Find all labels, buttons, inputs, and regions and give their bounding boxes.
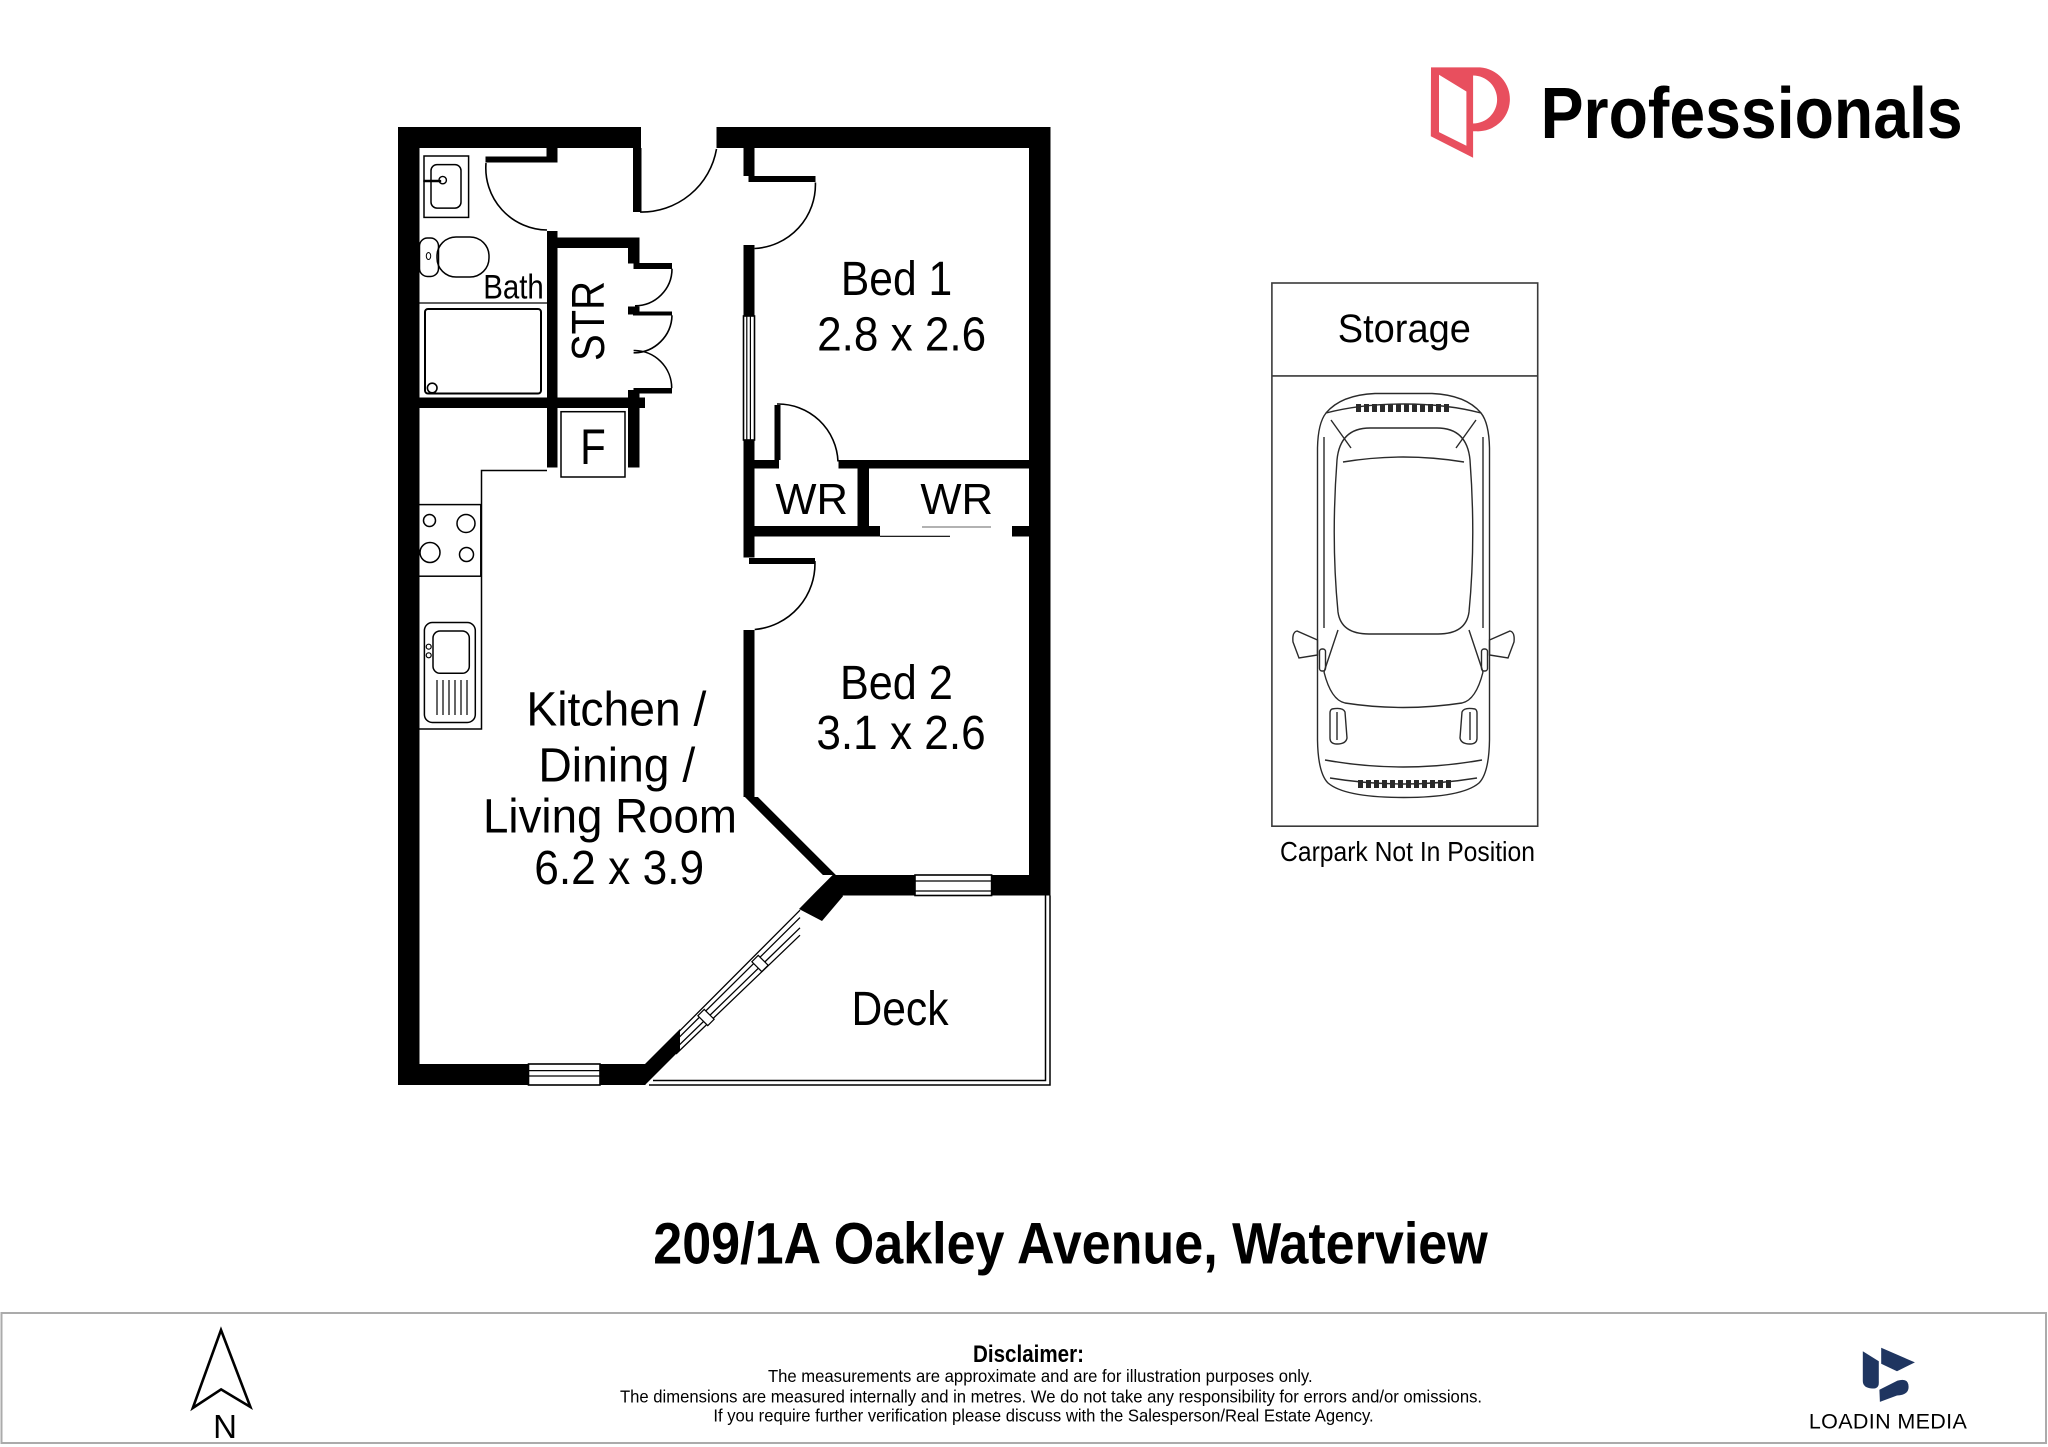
svg-text:Bed 1: Bed 1 xyxy=(841,252,952,306)
svg-text:LOADIN MEDIA: LOADIN MEDIA xyxy=(1809,1409,1968,1433)
svg-text:STR: STR xyxy=(563,281,614,361)
svg-text:Kitchen /: Kitchen / xyxy=(526,682,707,736)
svg-text:Living Room: Living Room xyxy=(483,790,737,843)
svg-text:WR: WR xyxy=(920,475,993,524)
svg-text:The dimensions are measured in: The dimensions are measured internally a… xyxy=(620,1387,1482,1406)
svg-text:Professionals: Professionals xyxy=(1541,73,1963,153)
svg-text:Disclaimer:: Disclaimer: xyxy=(973,1341,1084,1368)
svg-text:2.8 x 2.6: 2.8 x 2.6 xyxy=(817,307,986,361)
svg-text:Carpark Not In Position: Carpark Not In Position xyxy=(1280,836,1535,868)
svg-text:Bed 2: Bed 2 xyxy=(840,656,953,710)
svg-text:Dining /: Dining / xyxy=(538,738,696,792)
svg-text:Storage: Storage xyxy=(1338,307,1471,351)
svg-text:N: N xyxy=(213,1408,237,1445)
svg-text:3.1 x 2.6: 3.1 x 2.6 xyxy=(816,705,985,759)
svg-text:Deck: Deck xyxy=(851,982,948,1036)
svg-text:If you require further verific: If you require further verification plea… xyxy=(713,1406,1373,1425)
svg-text:F: F xyxy=(580,419,606,475)
svg-text:209/1A Oakley Avenue, Watervie: 209/1A Oakley Avenue, Waterview xyxy=(653,1211,1488,1276)
svg-text:6.2 x 3.9: 6.2 x 3.9 xyxy=(534,841,704,895)
svg-text:WR: WR xyxy=(775,475,848,524)
svg-text:The measurements are approxima: The measurements are approximate and are… xyxy=(768,1367,1313,1386)
svg-text:Bath: Bath xyxy=(483,268,544,306)
